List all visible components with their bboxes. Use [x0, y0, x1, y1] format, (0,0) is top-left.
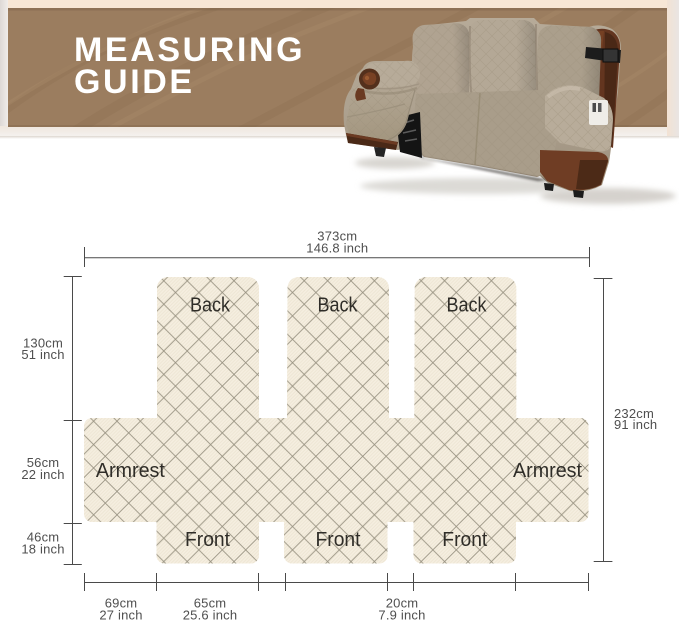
svg-text:22 inch: 22 inch	[21, 467, 64, 482]
svg-text:Back: Back	[190, 294, 231, 317]
svg-text:27 inch: 27 inch	[99, 608, 142, 623]
svg-text:Front: Front	[185, 528, 230, 551]
svg-text:146.8 inch: 146.8 inch	[306, 240, 368, 255]
svg-text:51 inch: 51 inch	[21, 347, 64, 362]
svg-text:25.6 inch: 25.6 inch	[183, 608, 238, 623]
svg-text:Armrest: Armrest	[96, 459, 165, 482]
svg-text:Back: Back	[318, 294, 359, 317]
svg-text:91 inch: 91 inch	[614, 417, 657, 432]
svg-text:18 inch: 18 inch	[21, 542, 64, 557]
svg-text:Front: Front	[442, 528, 487, 551]
svg-text:Armrest: Armrest	[513, 459, 582, 482]
svg-text:7.9 inch: 7.9 inch	[378, 608, 425, 623]
svg-text:Front: Front	[316, 528, 361, 551]
svg-text:Back: Back	[447, 294, 488, 317]
